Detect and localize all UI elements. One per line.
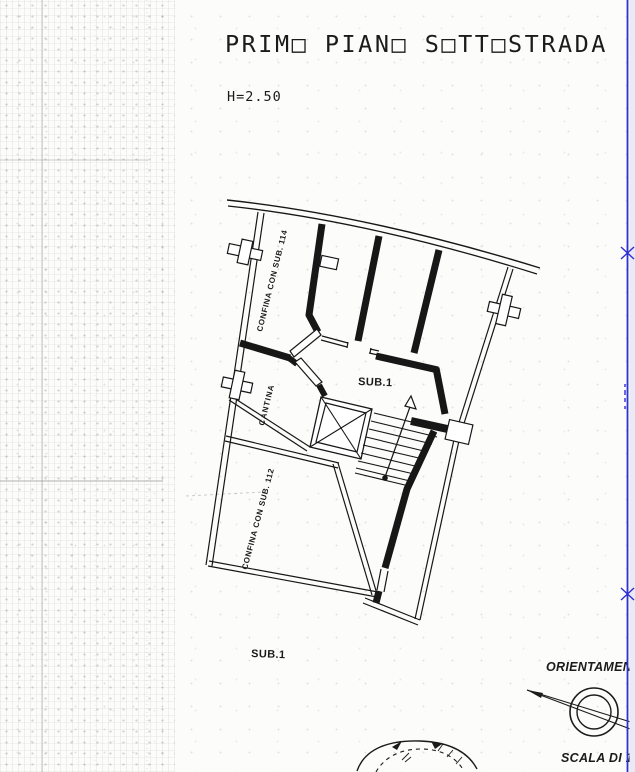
orientation-label: ORIENTAMENTO (546, 660, 635, 674)
floor-plan-drawing: PRIM□ PIAN□ S□TT□STRADA H=2.50 (0, 0, 635, 772)
label-confina-sub-114: CONFINA CON SUB. 114 (255, 229, 289, 333)
right-corridor-walls (363, 421, 452, 625)
label-confina-sub-112: CONFINA CON SUB. 112 (240, 467, 276, 570)
orientation-block: ORIENTAMENTO SCALA DI 1:100 (527, 660, 635, 765)
scale-label: SCALA DI 1:100 (561, 751, 635, 765)
label-sub1-lower: SUB.1 (251, 648, 286, 661)
plan-walls (206, 200, 540, 625)
stub-wall (320, 255, 339, 269)
page-title: PRIM□ PIAN□ S□TT□STRADA (225, 30, 608, 58)
lower-room-walls (208, 436, 378, 597)
compass-orientation-icon (527, 688, 634, 736)
partition-walls-thick (309, 224, 439, 353)
annotation-tiny-marks (624, 384, 626, 409)
ceiling-height-note: H=2.50 (227, 89, 282, 105)
label-cantina: CANTINA (257, 383, 276, 426)
label-sub1: SUB.1 (358, 376, 393, 389)
elevator-shaft (310, 397, 372, 459)
stair-direction-arrow (383, 396, 416, 480)
stamp-arc (357, 741, 477, 772)
scale-prefix: SCALA DI 1: (561, 751, 635, 765)
vestibule-walls (240, 343, 325, 396)
floor-plan-page: PRIM□ PIAN□ S□TT□STRADA H=2.50 (0, 0, 635, 772)
annotation-line (621, 0, 635, 772)
